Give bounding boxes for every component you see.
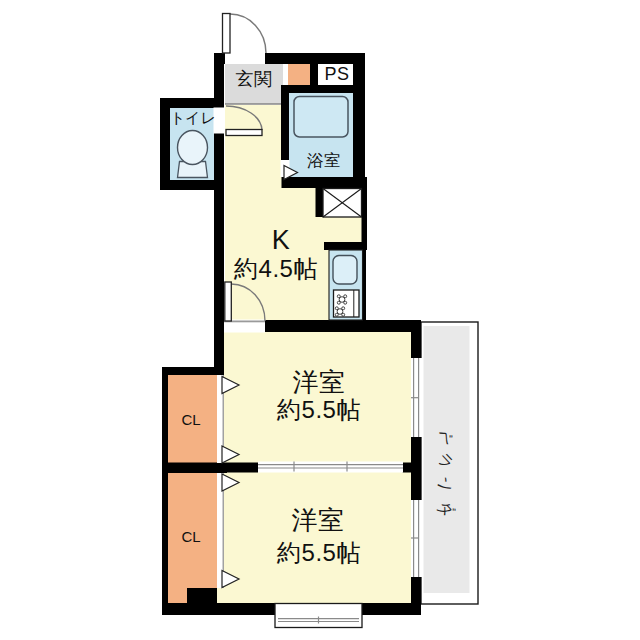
stove-icon — [334, 290, 360, 317]
washer-space-icon — [323, 189, 362, 218]
room-upper-name-label: 洋室 — [293, 367, 346, 397]
closet-lower-label: CL — [181, 528, 200, 545]
bath-label: 浴室 — [307, 151, 341, 169]
wall-segment — [411, 320, 421, 360]
window-bay — [275, 604, 362, 628]
partition-band — [258, 462, 403, 473]
wall-segment — [316, 188, 324, 217]
wall-segment — [265, 320, 421, 332]
toilet-label: トイレ — [170, 109, 216, 126]
wall-segment — [324, 242, 367, 250]
wall-segment — [411, 577, 421, 615]
sliding-partition — [258, 462, 403, 473]
ps-label: PS — [324, 64, 349, 84]
kitchen-name-label: K — [272, 225, 291, 255]
window-bottom — [275, 604, 362, 628]
sink-icon — [333, 256, 357, 285]
wall-segment — [160, 180, 224, 190]
wall-segment — [162, 473, 168, 615]
entrance-door — [223, 14, 267, 65]
wall-segment — [162, 603, 275, 615]
kitchen-size-label: 約4.5帖 — [233, 255, 318, 282]
entrance-door-arc — [230, 14, 266, 53]
wall-segment — [214, 320, 224, 332]
entrance-door-leaf — [223, 14, 231, 54]
toilet-door-leaf — [226, 130, 262, 136]
wall-segment — [227, 463, 258, 473]
closet-lower-floor-notch — [168, 588, 187, 603]
floor-plan: 玄関 PS トイレ 浴室 K 約4.5帖 洋室 約5.5帖 洋室 約5.5帖 C… — [0, 0, 640, 640]
room-lower-size-label: 約5.5帖 — [276, 539, 361, 566]
wall-segment — [214, 133, 224, 332]
wall-segment — [214, 332, 224, 367]
wall-segment — [187, 588, 217, 603]
kitchen-counter — [329, 250, 363, 320]
room-lower-name-label: 洋室 — [292, 505, 345, 535]
room-upper-size-label: 約5.5帖 — [276, 396, 361, 423]
wall-segment — [162, 367, 224, 375]
toilet-icon — [178, 131, 208, 178]
kitchen-door-leaf — [225, 282, 232, 321]
genkan-step-line — [225, 103, 283, 105]
toilet-bowl — [178, 131, 208, 165]
genkan-label: 玄関 — [236, 69, 273, 89]
wall-segment — [160, 98, 170, 190]
wall-segment — [362, 188, 368, 250]
wall-segment — [162, 367, 168, 473]
wall-segment — [214, 53, 224, 108]
wall-segment — [162, 463, 227, 474]
entrance-opening — [225, 53, 265, 64]
floor-plan-svg: 玄関 PS トイレ 浴室 K 約4.5帖 洋室 約5.5帖 洋室 約5.5帖 C… — [0, 0, 640, 640]
window-room-lower — [411, 500, 422, 577]
wall-segment — [281, 85, 289, 163]
closet-upper-label: CL — [181, 411, 200, 428]
bathtub-icon — [294, 97, 348, 138]
wall-segment — [411, 437, 421, 500]
shoe-cabinet — [288, 64, 310, 88]
window-room-upper — [411, 358, 422, 437]
wall-segment — [282, 177, 368, 188]
